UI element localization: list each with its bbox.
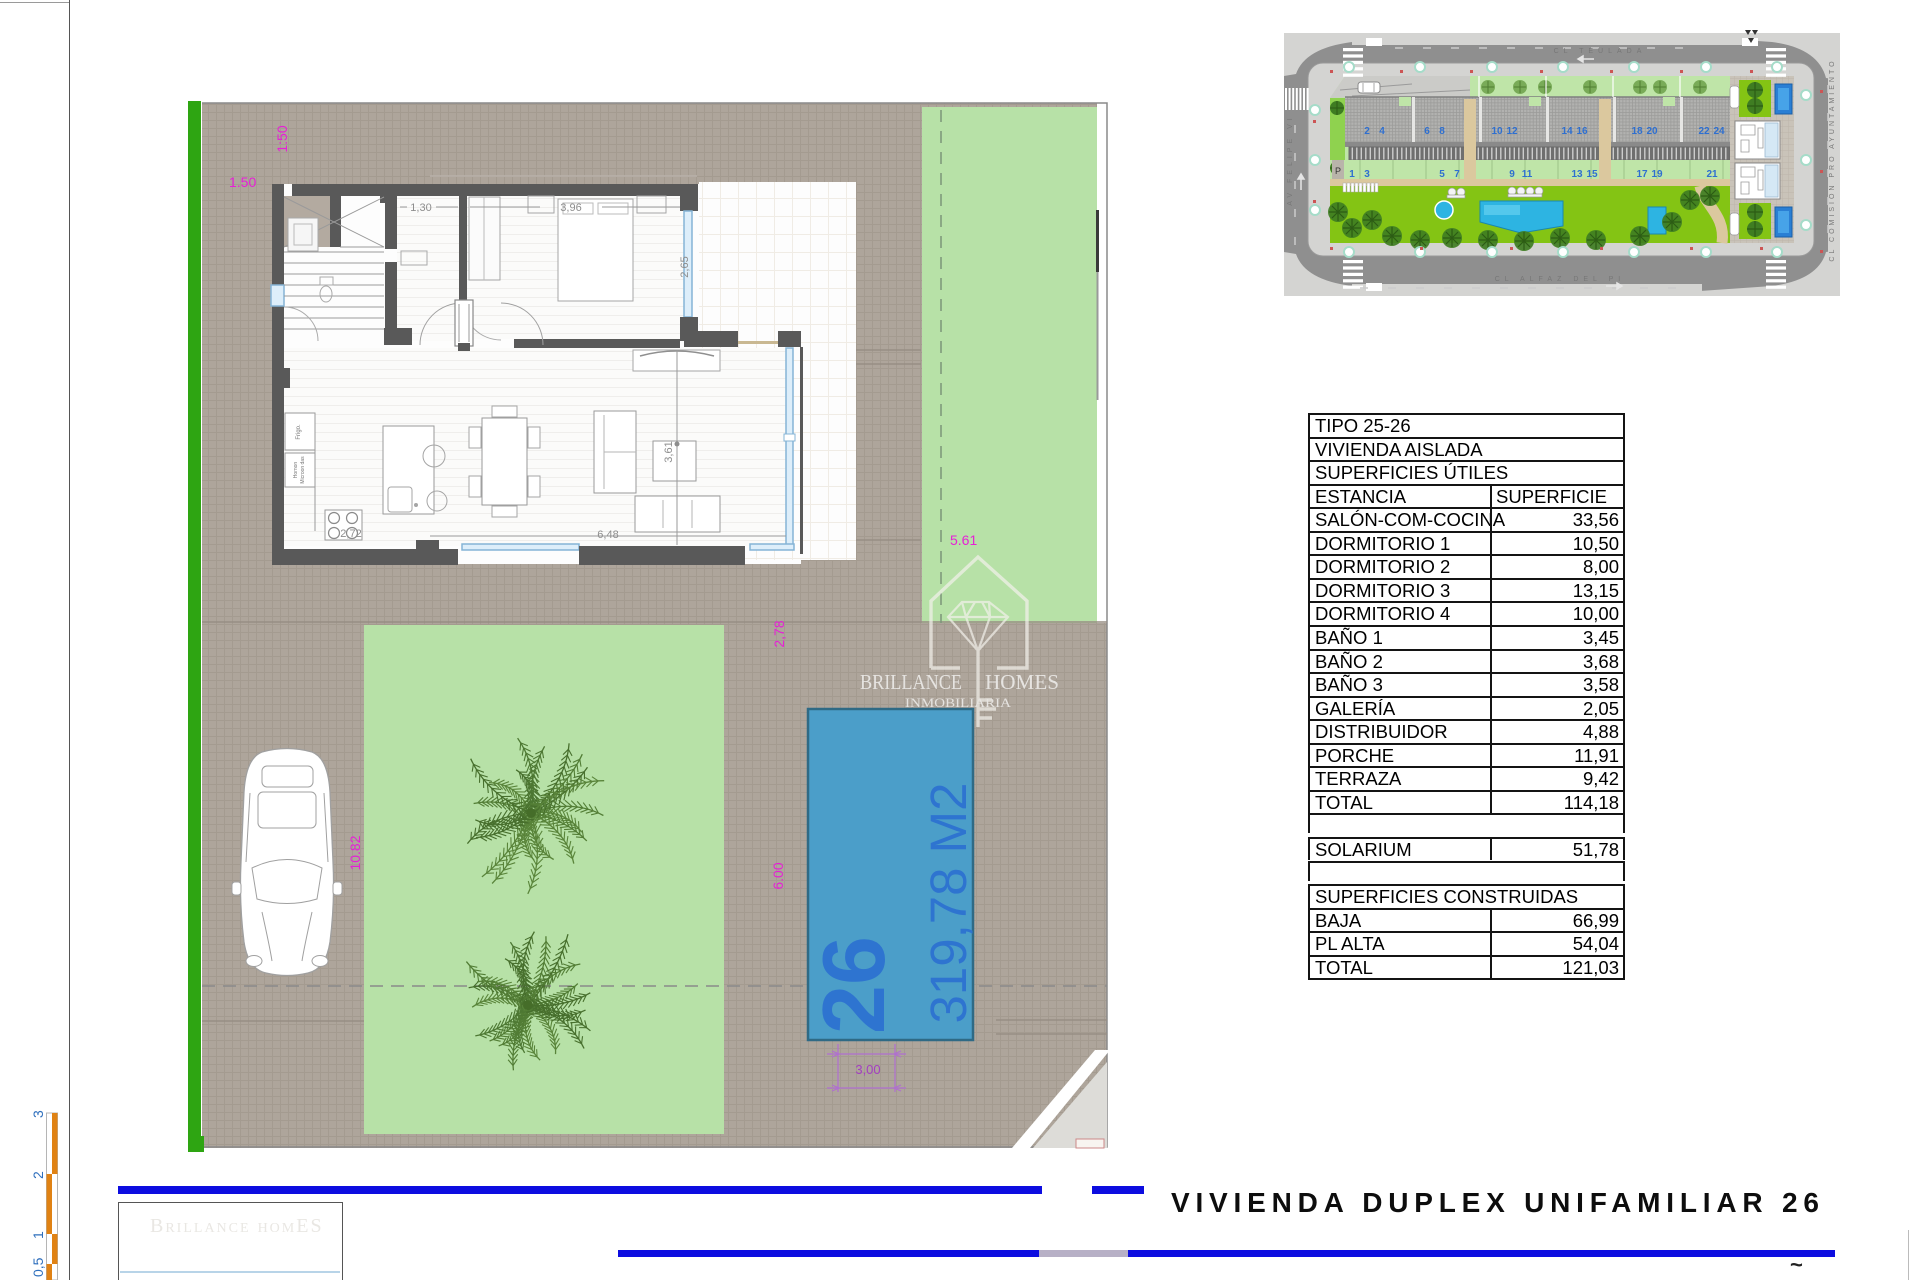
svg-text:11: 11 <box>1522 169 1533 180</box>
svg-text:Hornon: Hornon <box>293 462 299 479</box>
svg-text:Microon das: Microon das <box>300 456 306 484</box>
svg-text:21: 21 <box>1706 169 1718 180</box>
svg-text:22: 22 <box>1698 126 1710 137</box>
svg-text:9: 9 <box>1509 169 1515 180</box>
svg-text:CL ALFAZ DEL PI: CL ALFAZ DEL PI <box>1495 276 1626 283</box>
svg-text:4: 4 <box>1379 126 1385 137</box>
svg-text:6: 6 <box>1424 126 1430 137</box>
svg-text:3: 3 <box>1364 169 1370 180</box>
svg-text:10: 10 <box>1491 126 1503 137</box>
svg-text:2: 2 <box>30 1171 46 1179</box>
svg-text:5.61: 5.61 <box>950 532 977 548</box>
svg-text:HOMES: HOMES <box>985 670 1059 694</box>
svg-text:2,65: 2,65 <box>679 256 691 277</box>
svg-text:10.82: 10.82 <box>347 835 363 870</box>
svg-text:3: 3 <box>30 1110 46 1118</box>
svg-text:P: P <box>1335 166 1341 176</box>
svg-text:14: 14 <box>1561 126 1573 137</box>
svg-text:16: 16 <box>1576 126 1588 137</box>
svg-text:26: 26 <box>804 936 903 1034</box>
svg-text:BRILLANCE: BRILLANCE <box>860 670 962 694</box>
svg-text:13: 13 <box>1571 169 1583 180</box>
svg-text:CL TEULADA: CL TEULADA <box>1554 48 1647 55</box>
svg-text:6,48: 6,48 <box>597 529 618 541</box>
svg-text:2,72: 2,72 <box>340 528 361 540</box>
svg-text:24: 24 <box>1713 126 1725 137</box>
svg-text:1:50: 1:50 <box>274 125 290 152</box>
svg-text:17: 17 <box>1636 169 1648 180</box>
svg-text:18: 18 <box>1631 126 1643 137</box>
svg-text:1: 1 <box>1349 169 1355 180</box>
svg-text:5: 5 <box>1439 169 1445 180</box>
svg-text:INMOBILIARIA: INMOBILIARIA <box>905 696 1011 710</box>
svg-text:3,96: 3,96 <box>560 202 581 214</box>
svg-text:Frigo.: Frigo. <box>296 424 302 440</box>
svg-text:6.00: 6.00 <box>770 862 786 889</box>
svg-text:2,78: 2,78 <box>771 620 787 647</box>
svg-text:AV FELIPE VI: AV FELIPE VI <box>1287 114 1294 205</box>
svg-text:12: 12 <box>1506 126 1518 137</box>
svg-text:1,30: 1,30 <box>410 202 431 214</box>
svg-text:1: 1 <box>30 1231 46 1239</box>
svg-text:0,5: 0,5 <box>30 1257 46 1277</box>
svg-text:1.50: 1.50 <box>229 174 256 190</box>
svg-text:7: 7 <box>1454 169 1460 180</box>
svg-text:319,78 M2: 319,78 M2 <box>920 782 977 1023</box>
svg-text:8: 8 <box>1439 126 1445 137</box>
svg-text:19: 19 <box>1651 169 1663 180</box>
svg-text:CL COMISION PRO AYUNTAMIENT: CL COMISION PRO AYUNTAMIENTO <box>1829 58 1836 261</box>
svg-text:2: 2 <box>1364 126 1370 137</box>
svg-text:20: 20 <box>1646 126 1658 137</box>
svg-text:3,00: 3,00 <box>855 1062 880 1077</box>
svg-text:15: 15 <box>1586 169 1598 180</box>
svg-text:3,61: 3,61 <box>663 441 675 462</box>
